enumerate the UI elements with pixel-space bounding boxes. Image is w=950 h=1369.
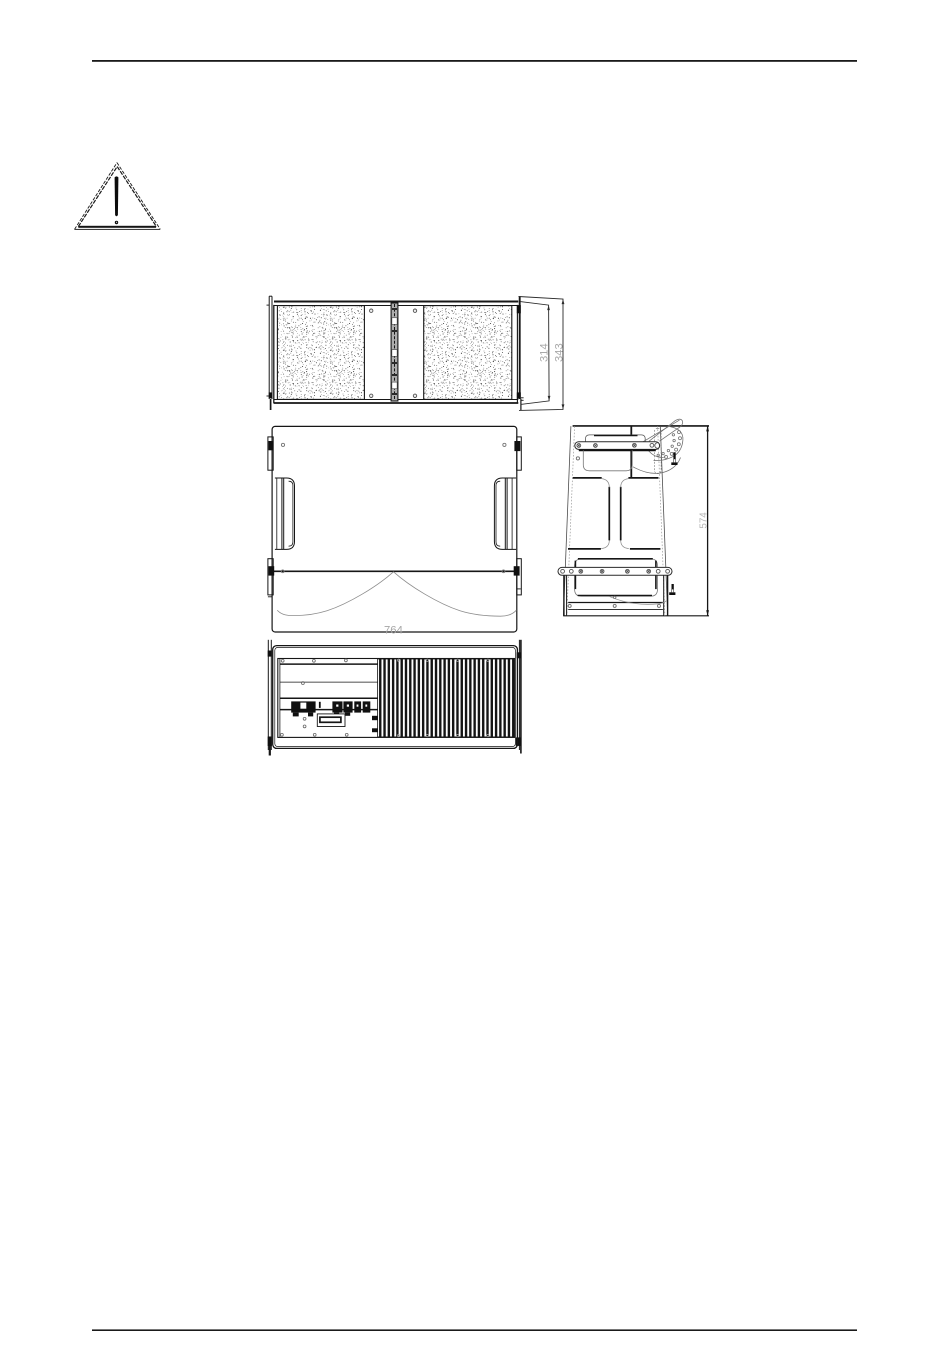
svg-text:574: 574 [699,512,710,529]
svg-text:343: 343 [554,343,566,362]
svg-text:764: 764 [384,624,403,636]
svg-text:314: 314 [539,343,551,362]
